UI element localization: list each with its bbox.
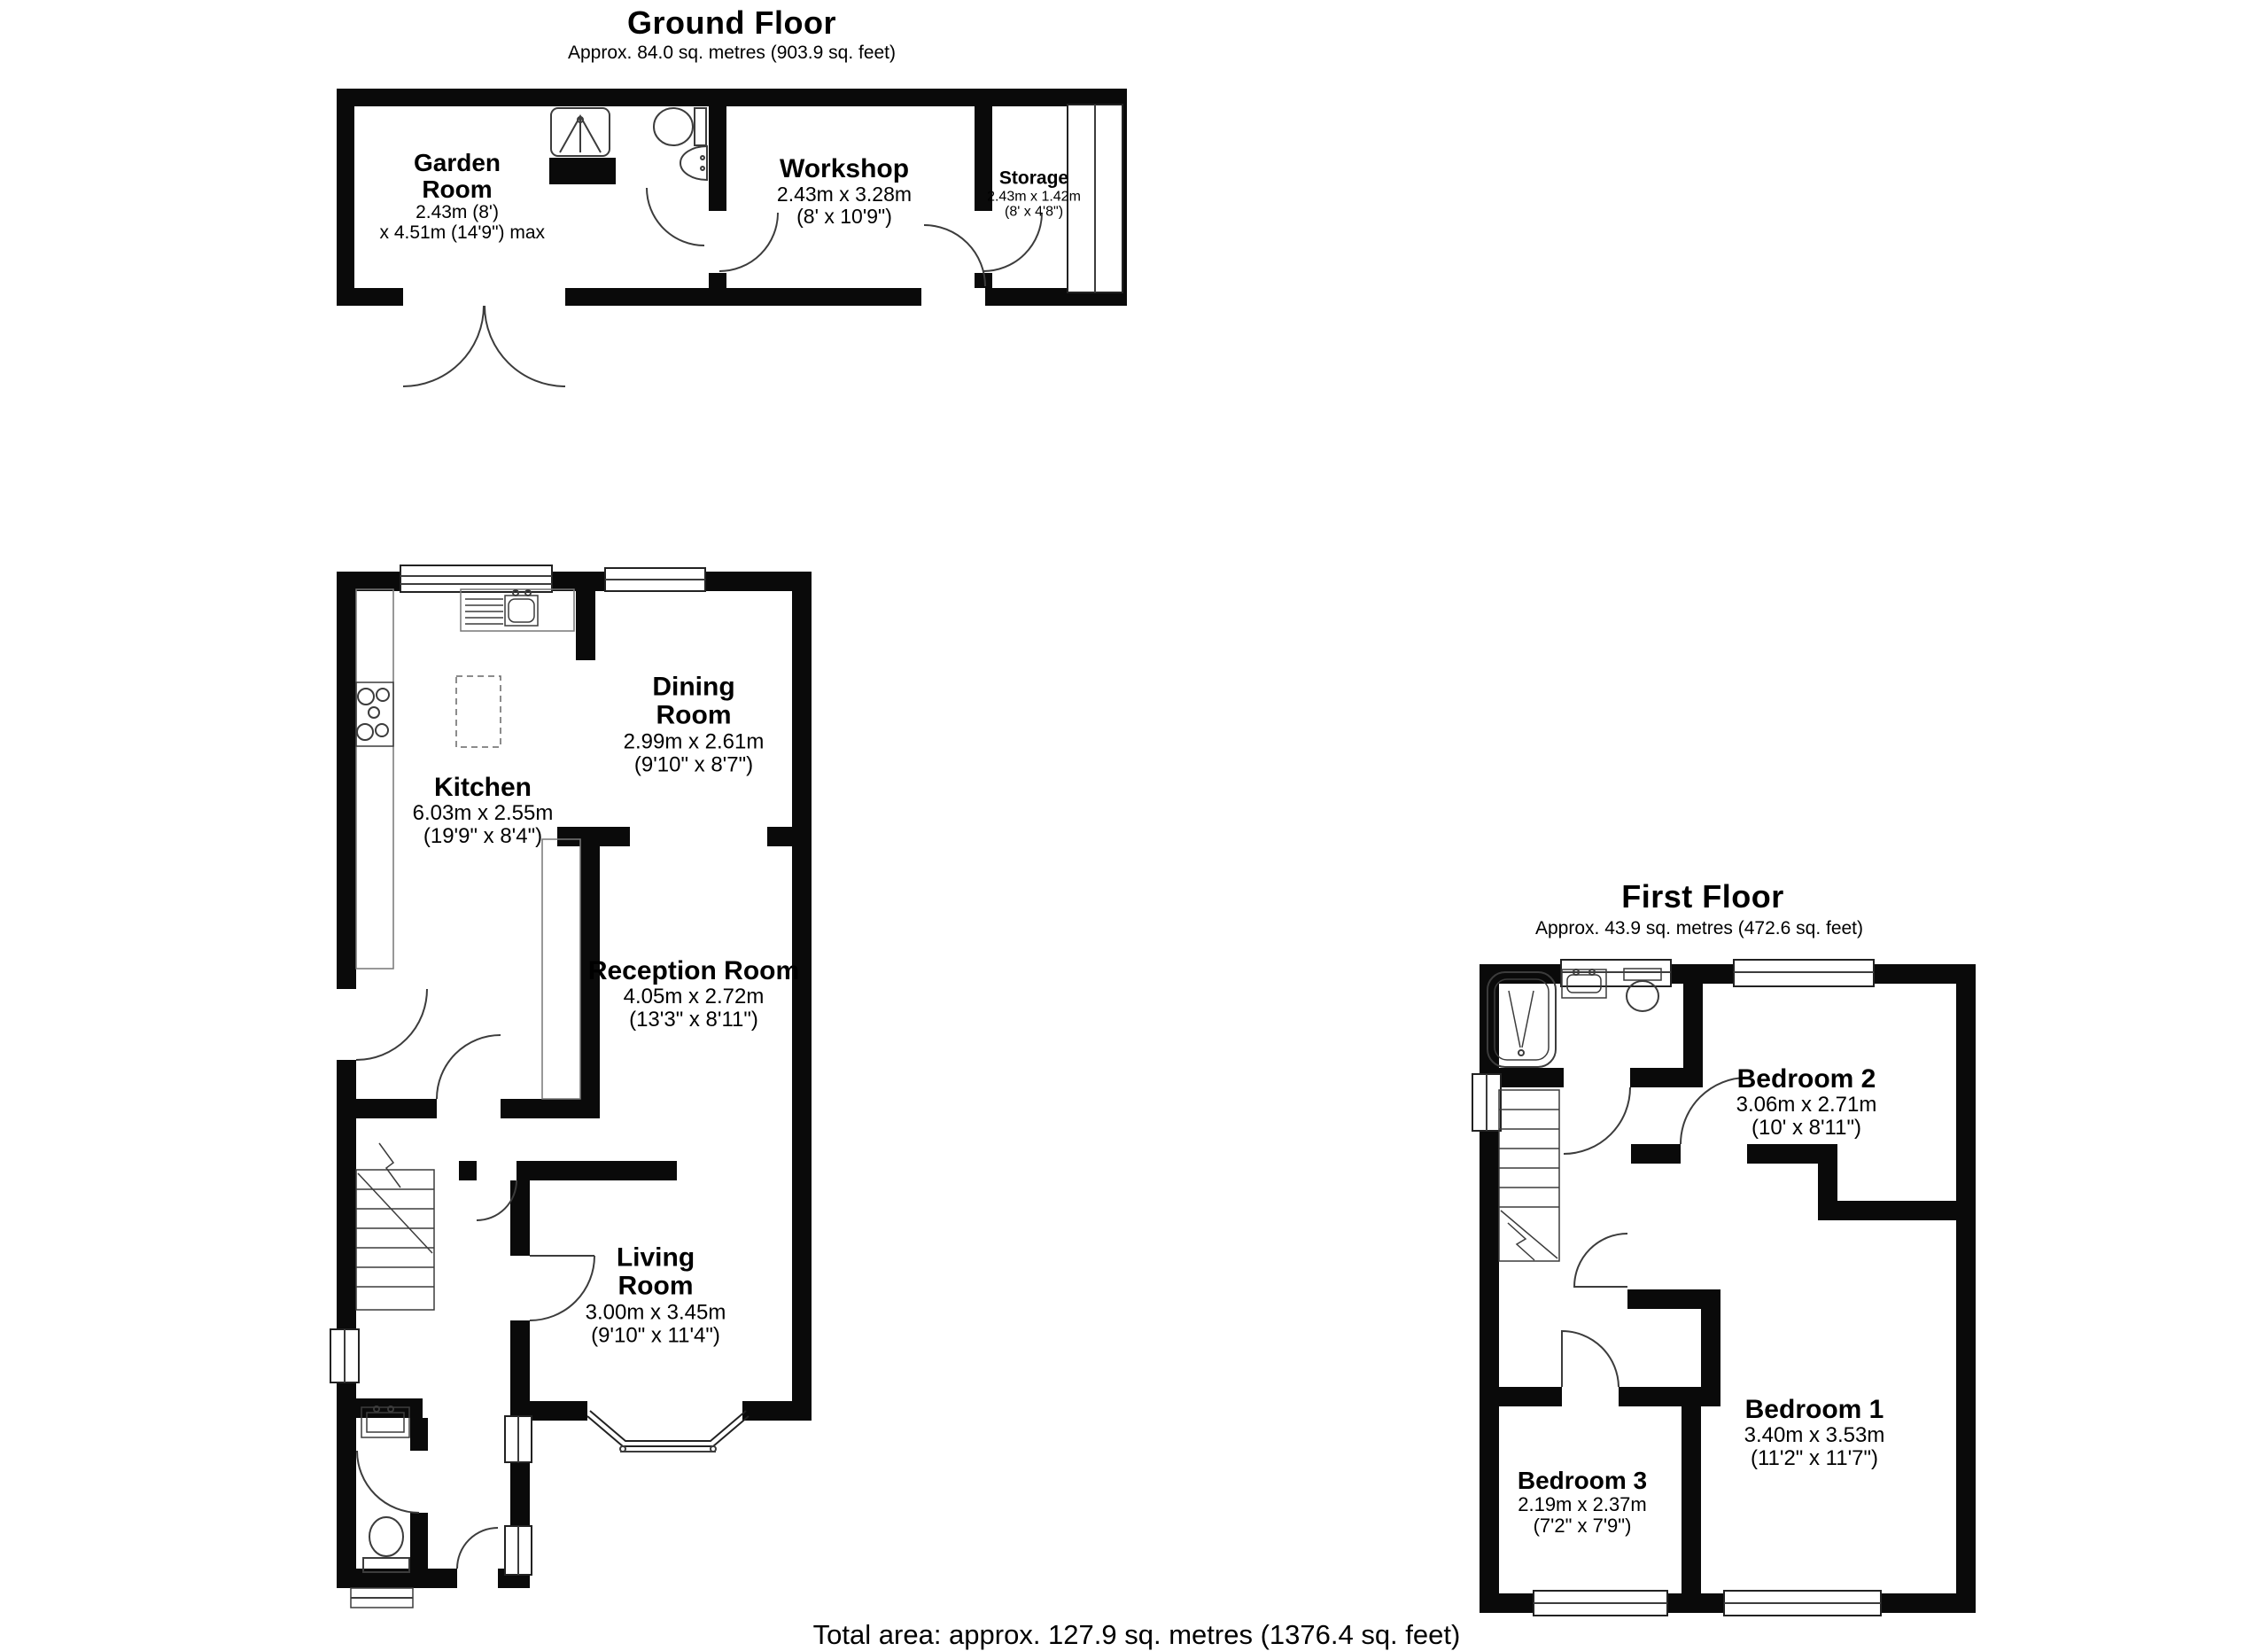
kitchen-island [456,676,501,747]
room-dim: 2.43m x 1.42m [945,189,1122,204]
room-dim: 3.40m x 3.53m [1690,1424,1938,1447]
door-arc [457,1528,498,1569]
room-dim: (9'10" x 11'4") [579,1324,734,1347]
room-dim: (7'2" x 7'9") [1449,1515,1715,1537]
bay-window [590,1411,746,1441]
room-dim: (8' x 4'8") [945,204,1122,219]
stairs-treads [1499,1110,1559,1207]
door-arc [477,1180,517,1220]
room-dim: (11'2" x 11'7") [1690,1447,1938,1470]
room-dim: 6.03m x 2.55m [377,802,589,825]
room-label-reception-room: Reception Room 4.05m x 2.72m (13'3" x 8'… [587,957,800,1032]
sink-icon [509,599,534,622]
stairs-break-line [1501,1211,1557,1258]
room-name: Workshop [729,155,959,183]
bath-icon [1509,991,1534,1047]
room-dim: 3.06m x 2.71m [1674,1094,1939,1117]
hob-burner-icon [376,724,388,736]
room-label-dining-room: Dining Room 2.99m x 2.61m (9'10" x 8'7") [617,674,772,777]
tap-icon [374,1406,379,1412]
stairs-break-line [358,1173,432,1253]
room-name: Living Room [579,1244,734,1302]
stairs-treads [356,1189,434,1287]
room-label-bedroom-1: Bedroom 1 3.40m x 3.53m (11'2" x 11'7") [1690,1396,1938,1470]
room-name: Storage [945,168,1122,189]
basin-tap-icon [701,167,704,170]
hob-burner-icon [369,707,379,718]
door-arc [1564,1087,1630,1154]
room-dim: (9'10" x 8'7") [617,753,772,776]
sink-icon [505,596,538,626]
room-dim: 2.43m x 3.28m [729,183,959,206]
hob-burner-icon [357,724,373,740]
door-arc [924,225,985,286]
door-arc [1574,1234,1627,1287]
room-label-bedroom-2: Bedroom 2 3.06m x 2.71m (10' x 8'11") [1674,1065,1939,1140]
room-name: Dining Room [617,674,772,731]
toilet-icon [369,1517,403,1556]
door-arc [357,1451,419,1513]
stairs-break-line [379,1143,400,1188]
stairs [1499,1090,1559,1261]
room-label-workshop: Workshop 2.43m x 3.28m (8' x 10'9") [729,155,959,228]
hob-burner-icon [358,689,374,705]
room-dim: 2.43m (8') [380,204,535,224]
bath-icon [1487,972,1556,1067]
room-name: Bedroom 1 [1690,1396,1938,1424]
room-dim: 2.19m x 2.37m [1449,1494,1715,1515]
door-arc [1562,1331,1619,1387]
garden-room-door-arc [403,306,484,386]
door-arc [647,188,704,245]
bay-window [620,1446,625,1452]
room-dim: (13'3" x 8'11") [587,1009,800,1032]
stairs [356,1170,434,1310]
room-label-garden-room: Garden Room 2.43m (8') x 4.51m (14'9") m… [380,150,535,244]
room-dim: 4.05m x 2.72m [587,985,800,1009]
hob-burner-icon [377,689,389,701]
drainer-icon [465,599,503,624]
room-dim: x 4.51m (14'9") max [380,223,535,244]
window [400,565,552,592]
room-dim: 3.00m x 3.45m [579,1301,734,1324]
floorplan-canvas: Ground Floor Approx. 84.0 sq. metres (90… [0,0,2268,1650]
garden-room-door-arc [485,306,565,386]
room-label-living-room: Living Room 3.00m x 3.45m (9'10" x 11'4"… [579,1244,734,1348]
room-name: Bedroom 3 [1449,1468,1715,1494]
basin-icon [680,146,707,180]
room-dim: (8' x 10'9") [729,206,959,228]
bath-drain-icon [1518,1050,1524,1055]
sink-icon [361,1407,409,1437]
front-door-arc [356,989,427,1060]
room-label-bedroom-3: Bedroom 3 2.19m x 2.37m (7'2" x 7'9") [1449,1468,1715,1537]
room-dim: (19'9" x 8'4") [377,825,589,848]
door-arc [983,213,1042,271]
toilet-cistern-icon [363,1558,409,1572]
door-arc [437,1035,501,1099]
room-name: Bedroom 2 [1674,1065,1939,1094]
basin-tap-icon [701,156,704,160]
toilet-cistern-icon [695,108,706,145]
room-dim: 2.99m x 2.61m [617,730,772,753]
bath-icon [1495,979,1549,1060]
kitchen-counter [542,839,580,1099]
room-name: Kitchen [377,774,589,802]
room-dim: (10' x 8'11") [1674,1117,1939,1140]
room-name: Garden Room [380,150,535,203]
room-label-storage: Storage 2.43m x 1.42m (8' x 4'8") [945,168,1122,219]
tap-icon [388,1406,393,1412]
sink-icon [367,1413,404,1432]
room-label-kitchen: Kitchen 6.03m x 2.55m (19'9" x 8'4") [377,774,589,848]
toilet-icon [654,108,693,145]
room-name: Reception Room [587,957,800,985]
bay-window [711,1446,716,1452]
